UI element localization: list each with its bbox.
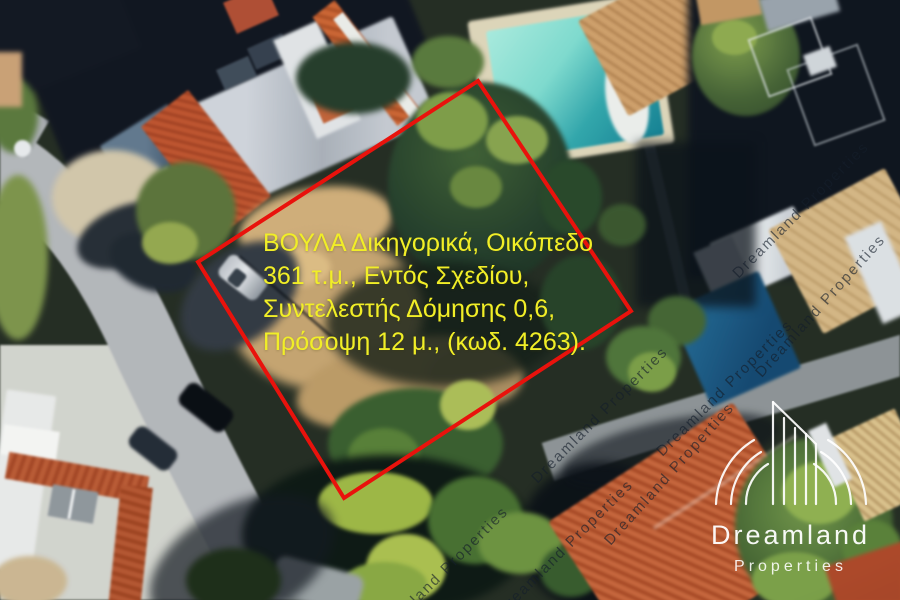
logo-tagline: Properties bbox=[693, 558, 888, 576]
agency-logo: Dreamland Properties bbox=[693, 388, 888, 576]
annotation-line: ΒΟΥΛΑ Δικηγορικά, Οικόπεδο bbox=[263, 227, 593, 260]
aerial-property-listing: Dreamland PropertiesDreamland Properties… bbox=[0, 0, 900, 600]
logo-name: Dreamland bbox=[693, 520, 888, 551]
listing-annotation: ΒΟΥΛΑ Δικηγορικά, Οικόπεδο 361 τ.μ., Εντ… bbox=[263, 227, 593, 359]
annotation-line: 361 τ.μ., Εντός Σχεδίου, bbox=[263, 260, 593, 293]
annotation-line: Συντελεστής Δόμησης 0,6, bbox=[263, 293, 593, 326]
buildings-arcs-icon bbox=[706, 388, 876, 513]
annotation-line: Πρόσοψη 12 μ., (κωδ. 4263). bbox=[263, 326, 593, 359]
